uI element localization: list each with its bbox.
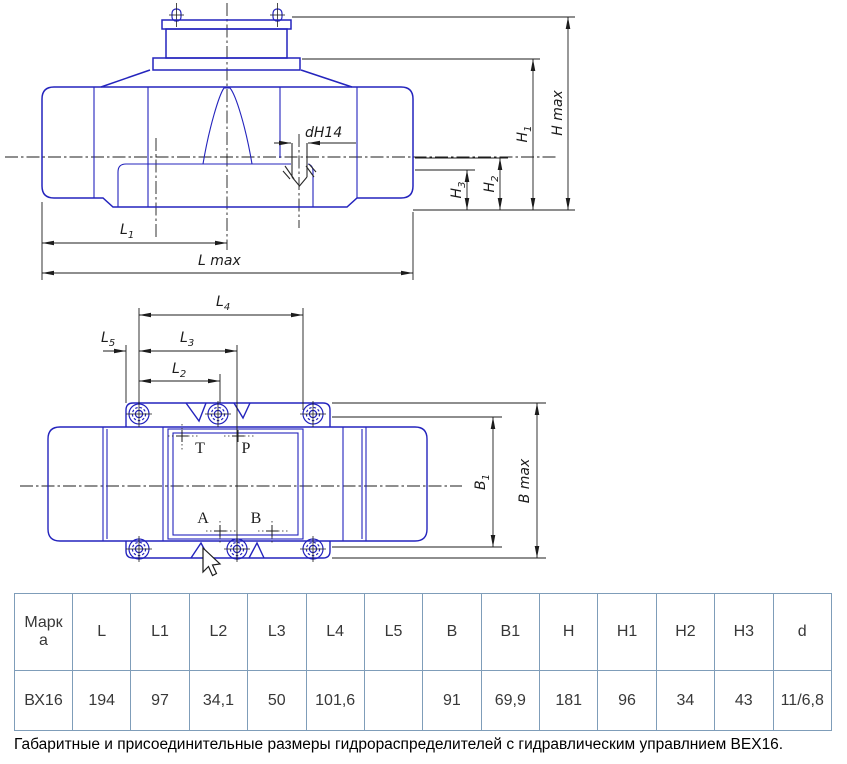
cell-h1: 96 [598, 671, 656, 731]
col-header-h: H [540, 594, 598, 671]
band-notch [249, 543, 264, 558]
dim-label-b1: B1 [473, 474, 492, 490]
hole-axis-crosses [126, 401, 326, 562]
col-header-d: d [773, 594, 832, 671]
dim-label-bmax: B max [517, 458, 533, 503]
col-header-l5: L5 [364, 594, 422, 671]
col-header-l2: L2 [189, 594, 247, 671]
side-view-body [42, 3, 413, 207]
dim-label-h3: H3 [449, 182, 468, 199]
caption: Габаритные и присоединительные размеры г… [14, 736, 842, 754]
port-label-t: T [195, 440, 205, 457]
cell-l4: 101,6 [306, 671, 364, 731]
port-crosses [168, 424, 288, 545]
dim-label-l4: L4 [216, 294, 230, 313]
plan-view-body [48, 403, 427, 559]
dim-label-l3: L3 [180, 330, 194, 349]
side-view-axes [5, 3, 558, 250]
dim-label-h1: H1 [515, 126, 534, 143]
col-header-h2: H2 [656, 594, 714, 671]
col-header-h1: H1 [598, 594, 656, 671]
cell-l2: 34,1 [189, 671, 247, 731]
cone-detail [203, 88, 252, 164]
dim-label-h2: H2 [482, 176, 501, 193]
col-header-h3: H3 [715, 594, 773, 671]
side-view: L1 L max dH14 H3 H2 H1 H max [5, 3, 575, 280]
port-label-p: P [242, 440, 251, 457]
cell-d: 11/6,8 [773, 671, 832, 731]
page: L1 L max dH14 H3 H2 H1 H max [0, 0, 847, 764]
cell-h: 181 [540, 671, 598, 731]
dim-label-l2: L2 [172, 361, 186, 380]
col-header-b: B [423, 594, 481, 671]
side-view-dimensions [42, 17, 575, 280]
col-header-l3: L3 [248, 594, 306, 671]
dim-label-hmax: H max [550, 90, 566, 136]
cell-h2: 34 [656, 671, 714, 731]
mouse-cursor [203, 548, 220, 576]
plan-view: T P A B L4 L3 L2 L5 [20, 294, 546, 576]
band-notch [186, 403, 206, 421]
plan-view-dimensions [103, 308, 546, 560]
port-label-a: A [197, 510, 209, 527]
cell-h3: 43 [715, 671, 773, 731]
cell-l: 194 [73, 671, 131, 731]
cell-l1: 97 [131, 671, 189, 731]
cell-l3: 50 [248, 671, 306, 731]
cell-l5 [364, 671, 422, 731]
cell-b1: 69,9 [481, 671, 539, 731]
cell-marka: ВХ16 [15, 671, 73, 731]
band-notch [234, 403, 250, 418]
dimensions-table: Марка L L1 L2 L3 L4 L5 B B1 H H1 H2 H3 d… [14, 593, 832, 731]
cell-b: 91 [423, 671, 481, 731]
table-data-row: ВХ16 194 97 34,1 50 101,6 91 69,9 181 96… [15, 671, 832, 731]
dim-label-dh14: dH14 [305, 125, 342, 141]
port-label-b: B [251, 510, 262, 527]
technical-drawing: L1 L max dH14 H3 H2 H1 H max [0, 0, 847, 585]
col-header-l4: L4 [306, 594, 364, 671]
col-header-l: L [73, 594, 131, 671]
col-header-marka: Марка [15, 594, 73, 671]
dim-label-l1: L1 [120, 222, 134, 241]
col-header-b1: B1 [481, 594, 539, 671]
col-header-l1: L1 [131, 594, 189, 671]
table-header-row: Марка L L1 L2 L3 L4 L5 B B1 H H1 H2 H3 d [15, 594, 832, 671]
dim-label-lmax: L max [198, 253, 241, 269]
dim-label-l5: L5 [101, 330, 115, 349]
